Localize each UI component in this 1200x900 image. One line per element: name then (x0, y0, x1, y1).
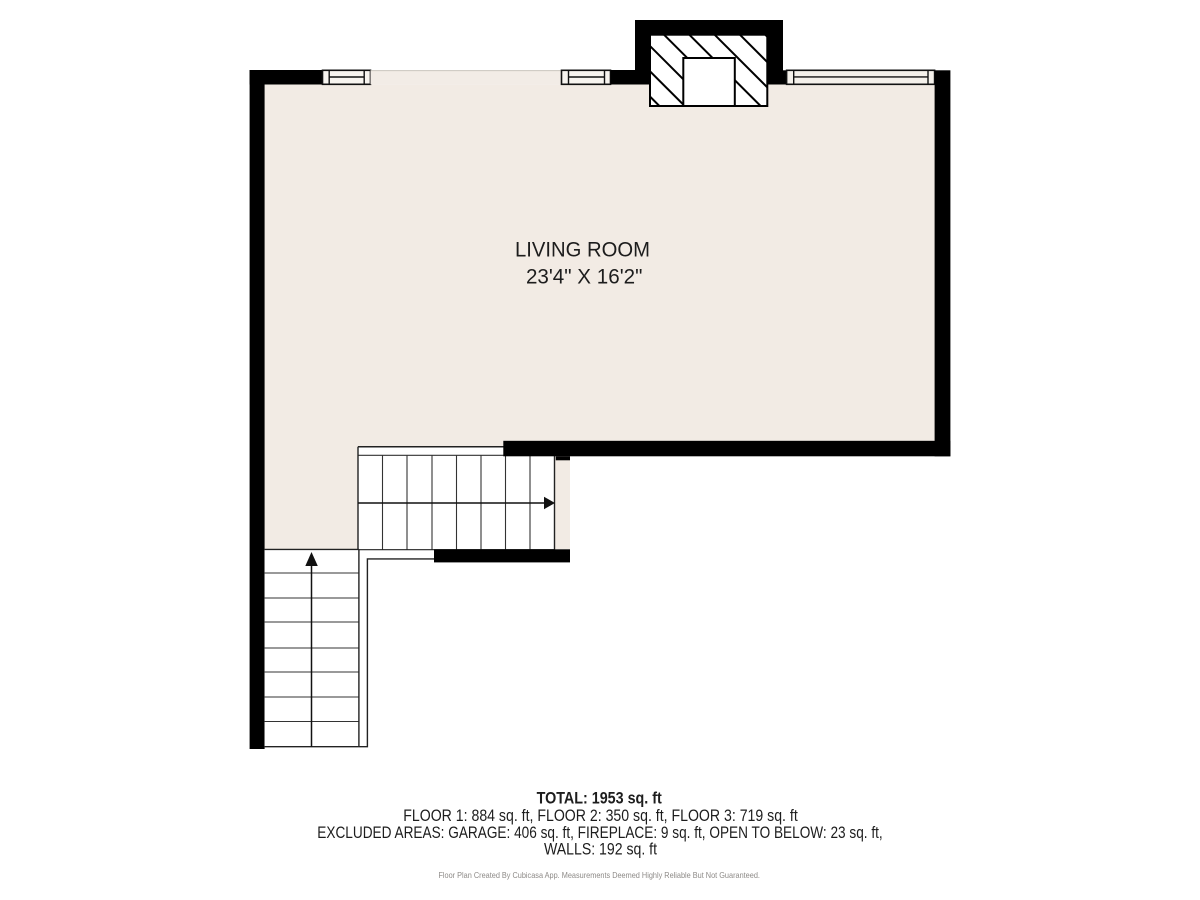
svg-text:LIVING ROOM: LIVING ROOM (515, 237, 650, 261)
svg-text:FLOOR 1: 884 sq. ft, FLOOR 2:: FLOOR 1: 884 sq. ft, FLOOR 2: 350 sq. ft… (403, 807, 798, 825)
svg-text:Floor Plan Created By Cubicasa: Floor Plan Created By Cubicasa App. Meas… (438, 870, 760, 880)
svg-text:WALLS: 192 sq. ft: WALLS: 192 sq. ft (544, 841, 657, 859)
svg-text:TOTAL: 1953 sq. ft: TOTAL: 1953 sq. ft (537, 790, 663, 808)
svg-text:23'4" X 16'2": 23'4" X 16'2" (526, 265, 643, 289)
svg-text:EXCLUDED AREAS: GARAGE: 406 sq: EXCLUDED AREAS: GARAGE: 406 sq. ft, FIRE… (317, 824, 882, 842)
